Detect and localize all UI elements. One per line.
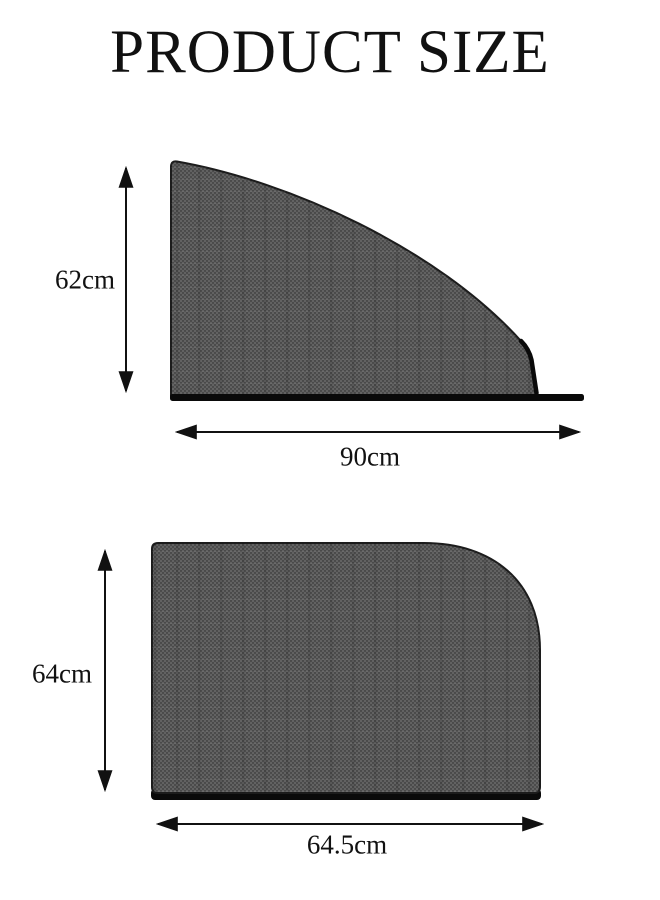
product-size-page: PRODUCT SIZE	[0, 0, 660, 900]
front-height-label: 62cm	[55, 267, 115, 294]
rear-window-shade-weave	[152, 543, 540, 793]
size-diagram	[0, 0, 660, 900]
rear-window-shade-figure	[105, 543, 542, 824]
rear-width-label: 64.5cm	[307, 832, 387, 859]
front-window-shade-bottom-bar	[170, 394, 584, 401]
front-width-label: 90cm	[340, 444, 400, 471]
rear-height-label: 64cm	[32, 661, 92, 688]
front-window-shade-figure	[126, 161, 584, 432]
front-window-shade-weave	[171, 161, 537, 396]
